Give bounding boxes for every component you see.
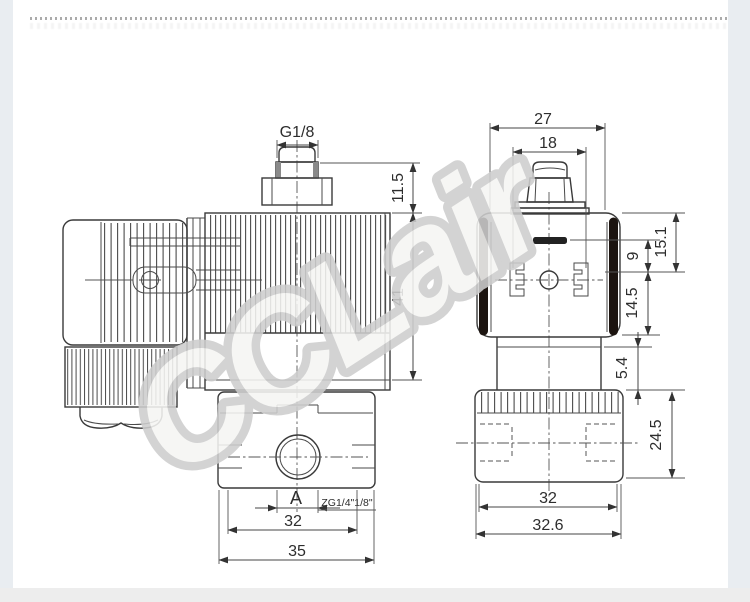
dim-14-5-label: 14.5 xyxy=(624,287,641,318)
technical-drawing-page: G1/8 11.5 41 A xyxy=(0,0,750,602)
dim-5-4-label: 5.4 xyxy=(614,357,631,379)
dim-35-label: 35 xyxy=(288,543,306,560)
dim-g18-label: G1/8 xyxy=(280,124,315,141)
dim-32-6-label: 32.6 xyxy=(532,517,563,534)
valve-body-front xyxy=(456,390,640,482)
thread-note-label: ZG1/4"1/8" xyxy=(321,497,373,509)
body-front-hatching xyxy=(478,392,620,413)
dim-32-side-label: 32 xyxy=(284,513,302,530)
valve-dimension-drawing: G1/8 11.5 41 A xyxy=(0,0,750,602)
thread-note: ZG1/4"1/8" xyxy=(318,497,376,510)
dim-27-label: 27 xyxy=(534,111,552,128)
dim-15-1-label: 15.1 xyxy=(653,226,670,257)
dim-body-height: 24.5 xyxy=(626,390,685,478)
dim-32-front-label: 32 xyxy=(539,490,557,507)
dim-a-label: A xyxy=(290,488,302,508)
dim-24-5-label: 24.5 xyxy=(648,419,665,450)
dim-body-inner-width-front: 32 xyxy=(479,484,617,512)
dim-18-label: 18 xyxy=(539,135,557,152)
dim-9-label: 9 xyxy=(625,251,642,260)
dim-center-to-bottom: 14.5 xyxy=(622,272,660,335)
dim-g18: G1/8 xyxy=(277,124,318,158)
